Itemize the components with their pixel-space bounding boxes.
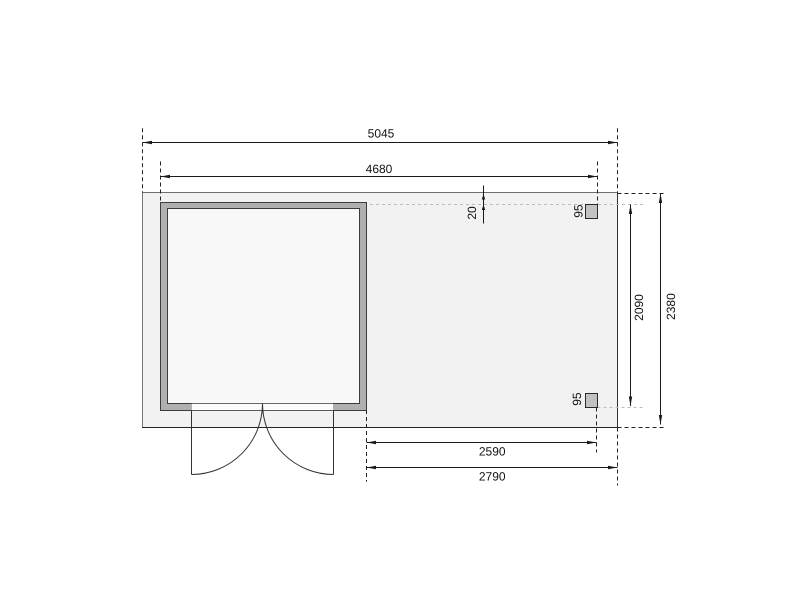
- svg-text:2380: 2380: [664, 293, 678, 320]
- svg-text:20: 20: [465, 206, 479, 220]
- svg-text:95: 95: [570, 392, 584, 406]
- svg-text:2790: 2790: [479, 470, 506, 484]
- svg-text:4680: 4680: [366, 162, 393, 176]
- svg-text:95: 95: [572, 204, 586, 218]
- svg-text:2090: 2090: [632, 294, 646, 321]
- svg-text:2590: 2590: [479, 445, 506, 459]
- svg-text:5045: 5045: [368, 127, 395, 141]
